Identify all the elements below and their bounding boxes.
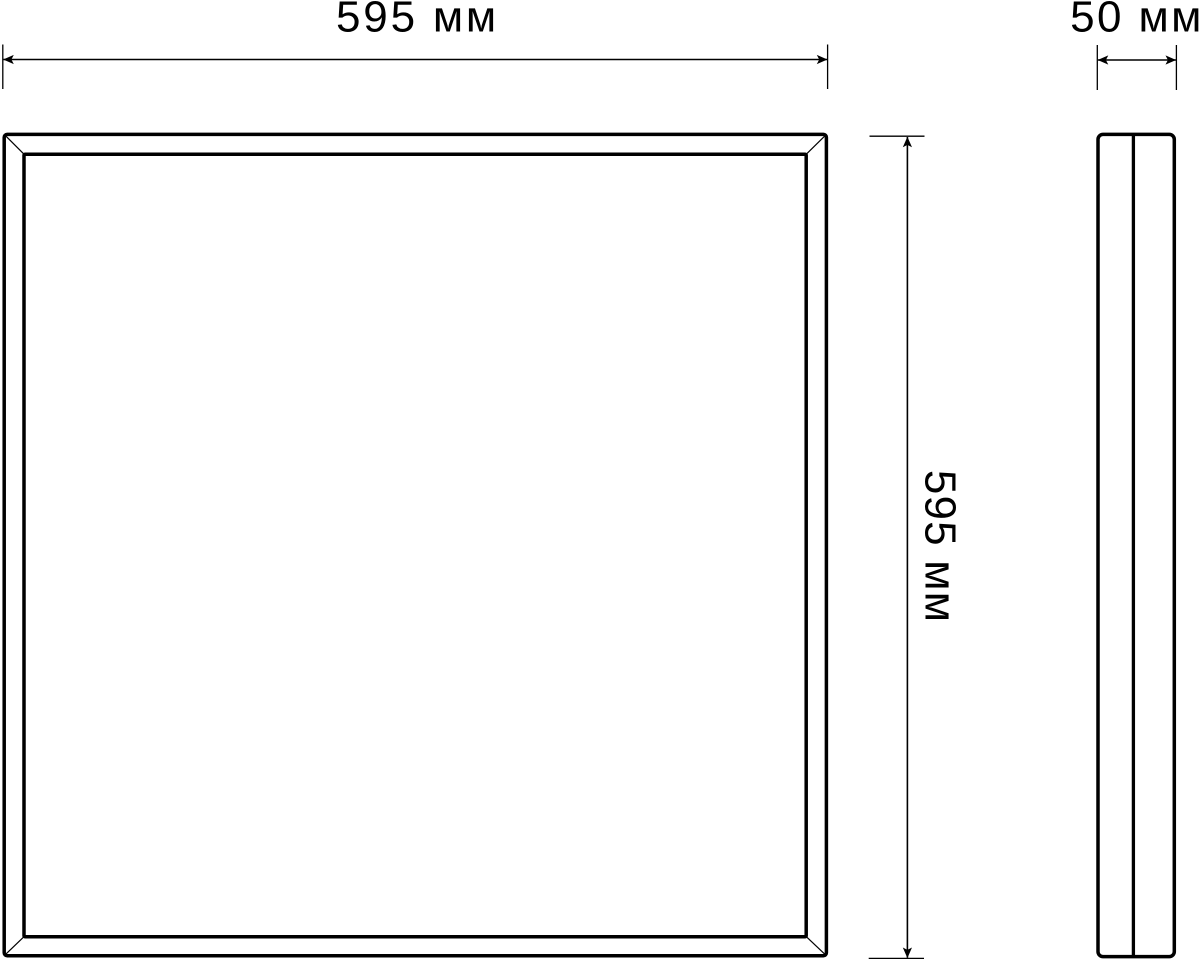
svg-text:50 мм: 50 мм [1070,0,1200,42]
svg-text:595 мм: 595 мм [916,470,965,623]
svg-text:595 мм: 595 мм [336,0,499,42]
